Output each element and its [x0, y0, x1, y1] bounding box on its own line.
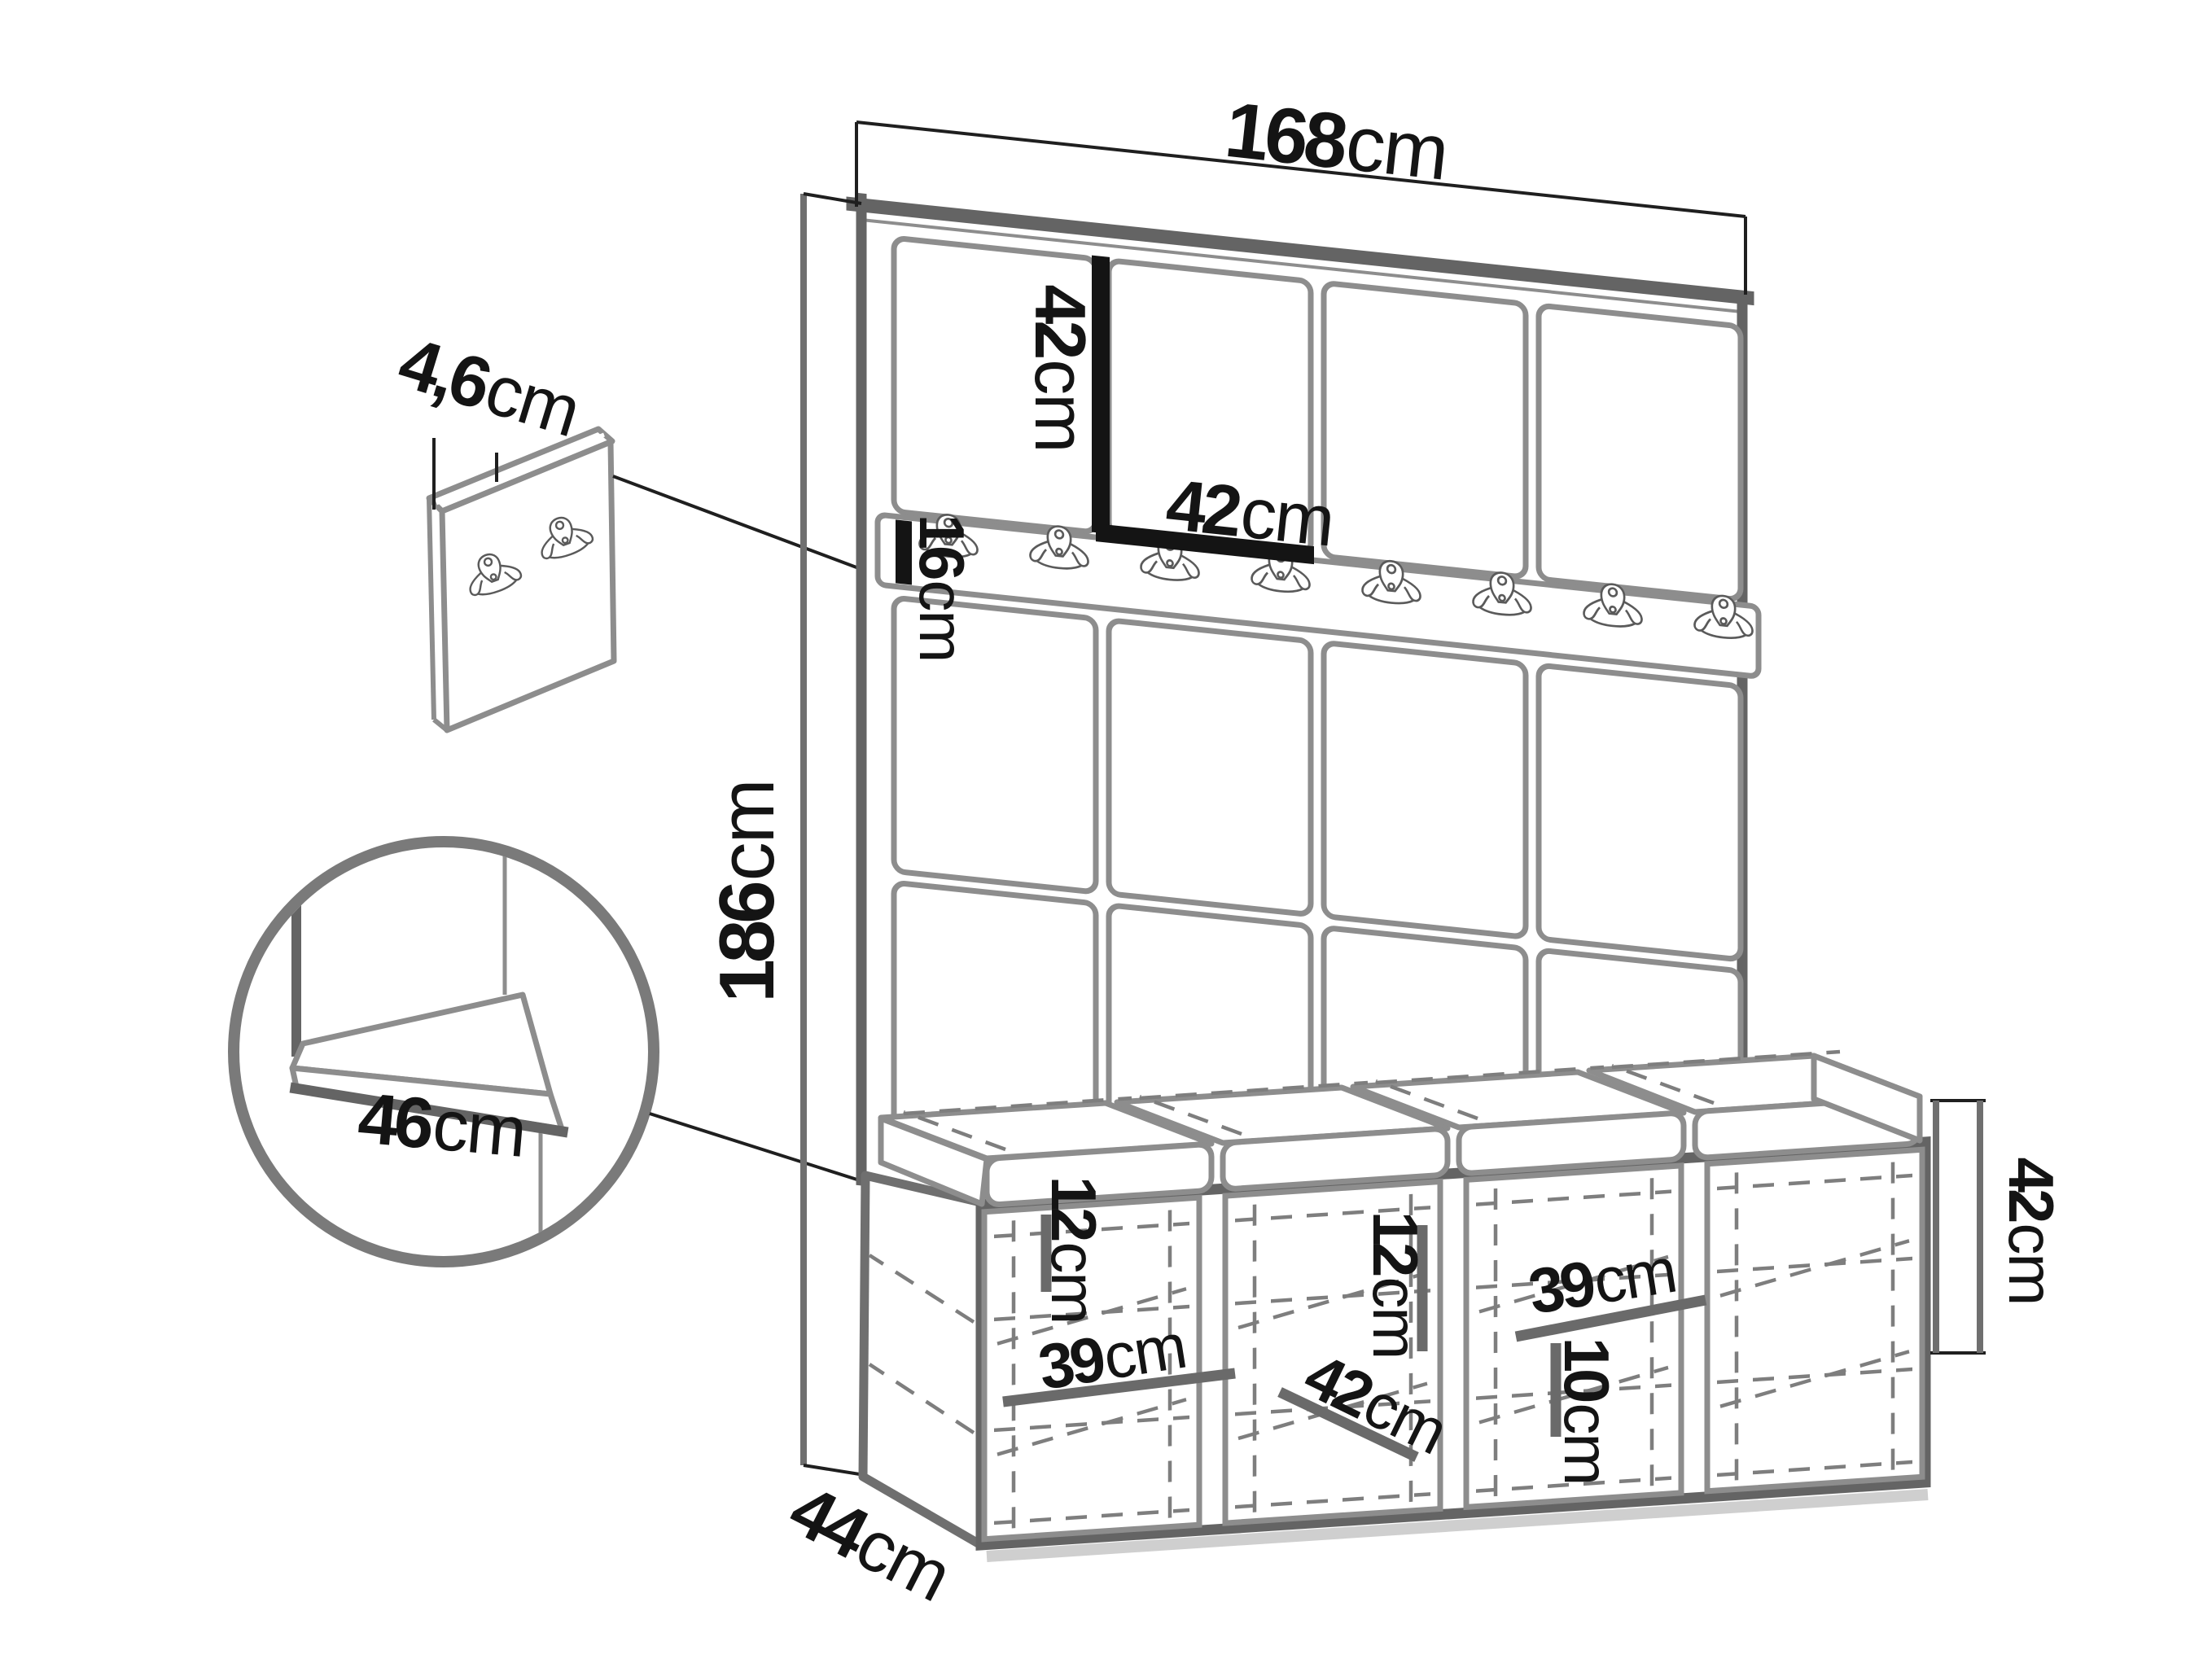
dim-mid-shelf-gap: 12cm: [1360, 1211, 1431, 1359]
dim-bench-height: 42cm: [1995, 1158, 2067, 1305]
detail-pointer-line: [613, 476, 863, 570]
dim-left-shelf-gap: 12cm: [1038, 1176, 1110, 1324]
dim-total-height: 186cm: [703, 780, 791, 1002]
bench-cubby-module: [1707, 1149, 1922, 1491]
wall-padded-panel: [1539, 305, 1741, 600]
wall-padded-panel: [1109, 620, 1311, 915]
furniture-dimension-diagram: 168cm 42cm 42cm 16cm 186cm 4,6cm 46cm 44…: [0, 0, 2212, 1659]
dim-right-shelf-gap: 10cm: [1551, 1337, 1623, 1485]
bench-height-bracket: [1930, 1101, 1986, 1353]
dim-total-width: 168cm: [1221, 86, 1452, 197]
detail-hook-panel: [429, 429, 863, 730]
dim-panel-thickness: 4,6cm: [390, 322, 589, 452]
wall-padded-panel: [1539, 665, 1741, 960]
bench-side-face: [863, 1175, 984, 1545]
dim-panel-height: 42cm: [1020, 284, 1101, 451]
wall-padded-panel: [1324, 282, 1526, 577]
dim-rail-height: 16cm: [906, 514, 978, 662]
circle-pointer-line: [650, 1114, 865, 1182]
dim-seat-depth: 46cm: [355, 1077, 528, 1172]
wall-padded-panel: [1324, 642, 1526, 937]
